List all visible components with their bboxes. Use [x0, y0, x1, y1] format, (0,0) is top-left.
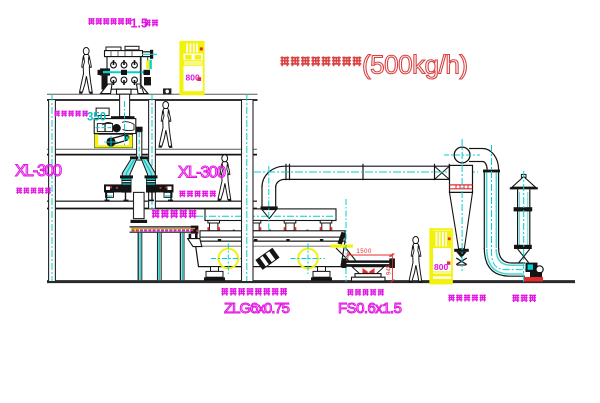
svg-text:350: 350 [87, 112, 106, 124]
svg-text:ZLG6x0.75: ZLG6x0.75 [224, 300, 290, 317]
svg-text:XL-300: XL-300 [15, 162, 62, 180]
svg-text:XL-300: XL-300 [178, 164, 226, 182]
svg-text:945: 945 [386, 264, 393, 275]
svg-text:800: 800 [434, 262, 448, 272]
svg-text:FS0.6x1.5: FS0.6x1.5 [338, 300, 402, 317]
svg-text:1500: 1500 [356, 249, 372, 255]
svg-text:(500kg/h): (500kg/h) [362, 50, 468, 80]
